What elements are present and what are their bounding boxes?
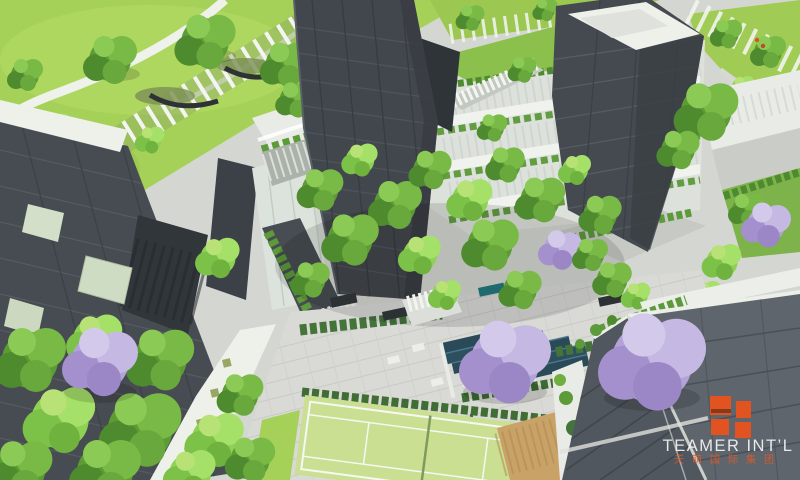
rendering-canvas: TEAMER INT’L 天萌国际集团 (0, 0, 800, 480)
person-figure (761, 44, 765, 48)
watermark-brand-text: TEAMER INT’L (663, 437, 794, 455)
logo-block-top-right (736, 401, 751, 418)
watermark-brand-cjk-text: 天萌国际集团 (674, 453, 782, 466)
logo-block-bottom-right (735, 422, 751, 438)
person-figure (755, 38, 759, 42)
aerial-courtyard-rendering: TEAMER INT’L 天萌国际集团 (0, 0, 800, 480)
logo-inner-mark (711, 409, 731, 413)
logo-block-bottom-left (711, 419, 729, 435)
